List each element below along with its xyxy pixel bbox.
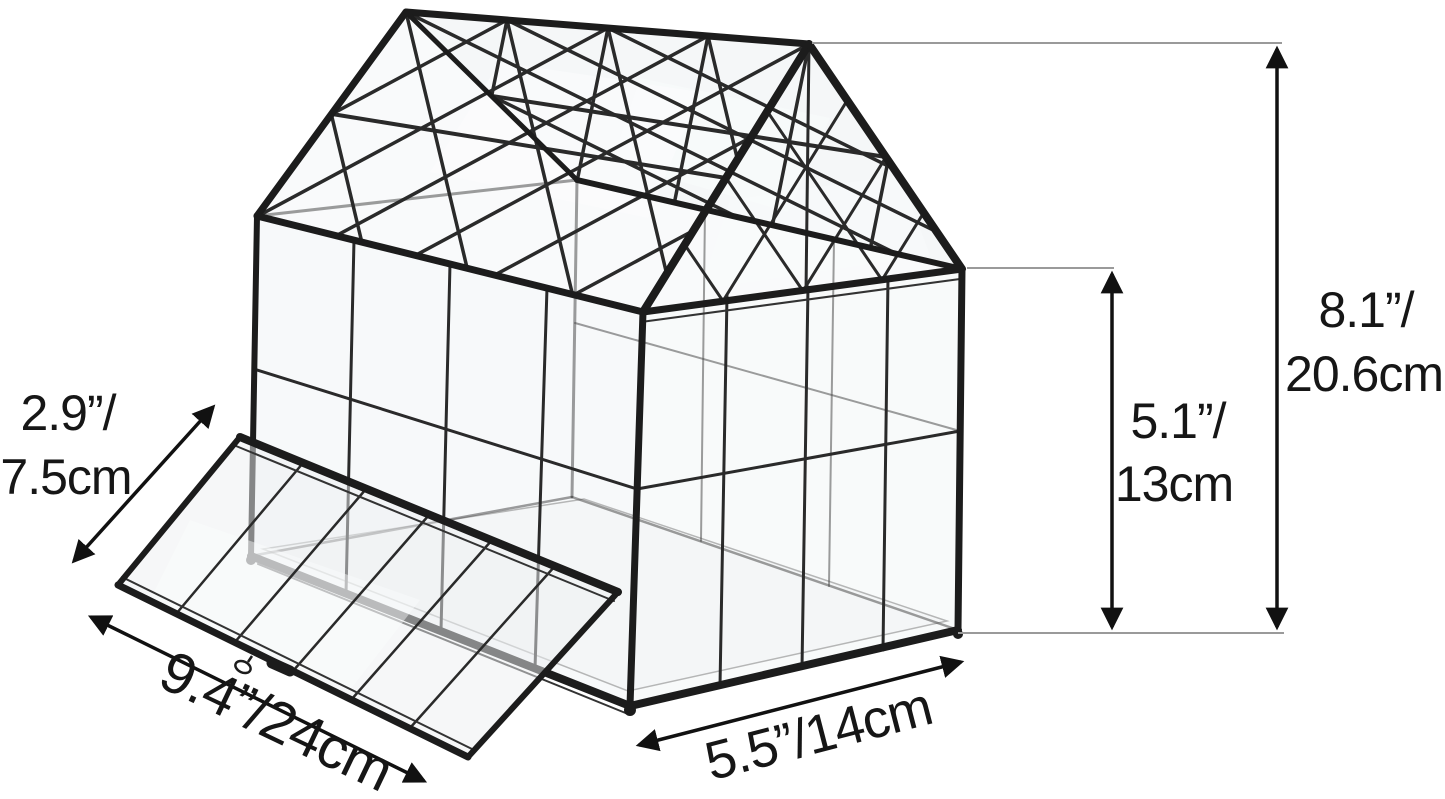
- door-short-side-label-line2: 7.5cm: [0, 449, 131, 505]
- wall-height-label-line1: 5.1”/: [1130, 393, 1226, 449]
- overall-height-label-line2: 20.6cm: [1285, 346, 1443, 402]
- dim-overall-height: 8.1”/ 20.6cm: [1277, 49, 1443, 627]
- dim-wall-height: 5.1”/ 13cm: [1112, 274, 1233, 627]
- overall-height-label-line1: 8.1”/: [1318, 282, 1414, 338]
- base-foot-front: [624, 704, 636, 716]
- terrarium-diagram-canvas: 8.1”/ 20.6cm 5.1”/ 13cm 2.9”/ 7.5cm 9.4”…: [0, 0, 1445, 799]
- base-front-width-label: 5.5”/14cm: [699, 676, 938, 792]
- wall-height-label-line2: 13cm: [1115, 456, 1233, 512]
- product-dimension-diagram: 8.1”/ 20.6cm 5.1”/ 13cm 2.9”/ 7.5cm 9.4”…: [0, 0, 1445, 799]
- door-short-side-label-line1: 2.9”/: [20, 385, 116, 441]
